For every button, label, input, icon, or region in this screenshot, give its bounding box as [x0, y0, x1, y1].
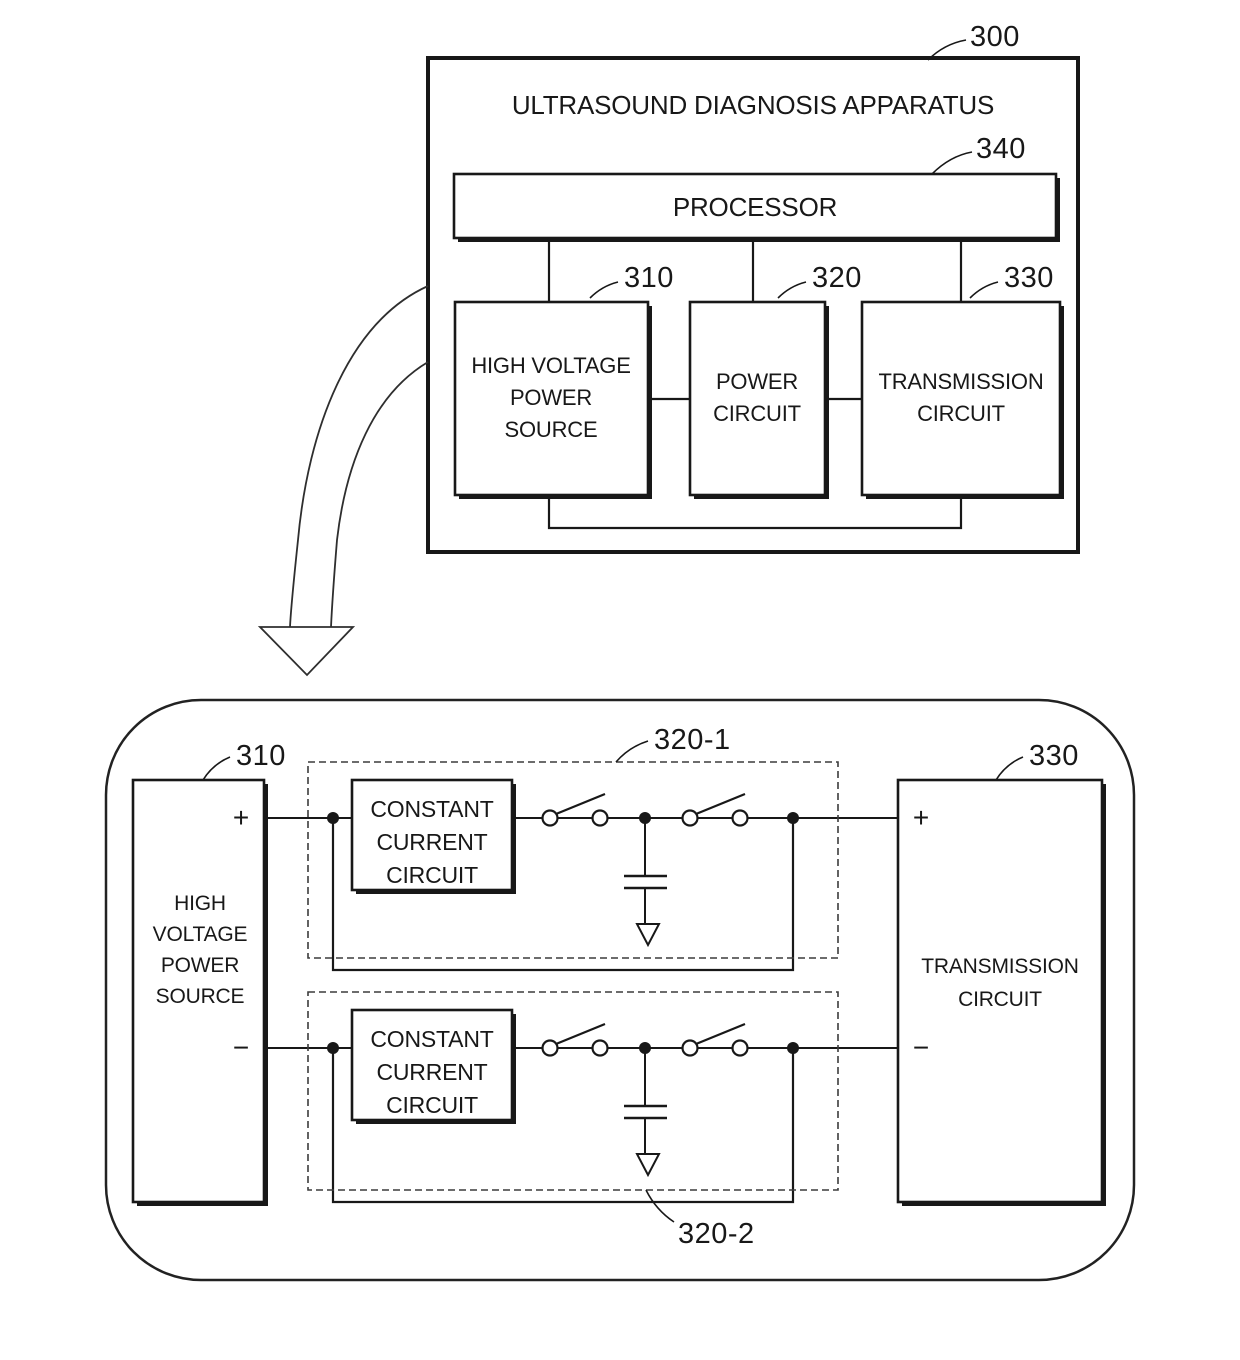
- transmission-label-line-1: TRANSMISSION: [878, 369, 1043, 394]
- bran2-junction-dot-3: [787, 1042, 799, 1054]
- branch2-switch1-contact-a: [543, 1041, 558, 1056]
- branch1-switch2-contact-b: [733, 811, 748, 826]
- detail-hvps-label-line-1: HIGH: [174, 892, 226, 915]
- branch2-switch2-contact-a: [683, 1041, 698, 1056]
- branch1-junction-dot-2: [639, 812, 651, 824]
- ref-320-1-label: 320-1: [654, 724, 731, 756]
- detail-hvps-label-line-2: VOLTAGE: [153, 923, 248, 946]
- hvps-label-line-2: POWER: [510, 385, 592, 410]
- detail-hvps-label-line-4: SOURCE: [156, 985, 245, 1008]
- detail-trans-label-line-2: CIRCUIT: [958, 988, 1042, 1011]
- transmission-label-line-2: CIRCUIT: [917, 401, 1005, 426]
- ccc2-label-line-2: CURRENT: [376, 1059, 487, 1085]
- branch1-switch2-contact-a: [683, 811, 698, 826]
- branch1-switch1-contact-b: [593, 811, 608, 826]
- overview-diagram: ULTRASOUND DIAGNOSIS APPARATUS 300 PROCE…: [428, 21, 1078, 552]
- ref-300-label: 300: [970, 21, 1020, 53]
- apparatus-title: ULTRASOUND DIAGNOSIS APPARATUS: [512, 90, 994, 120]
- power-circuit-box: [690, 302, 825, 495]
- ccc1-label-line-3: CIRCUIT: [386, 862, 478, 888]
- ccc2-label-line-1: CONSTANT: [370, 1026, 493, 1052]
- detail-trans-plus-sign: +: [913, 802, 929, 833]
- ref-340-label: 340: [976, 133, 1026, 165]
- processor-label: PROCESSOR: [673, 192, 837, 222]
- branch1-switch1-contact-a: [543, 811, 558, 826]
- detail-trans-minus-sign: −: [913, 1032, 929, 1063]
- ref-310-label: 310: [624, 262, 674, 294]
- transmission-box: [862, 302, 1060, 495]
- branch1-junction-dot-1: [327, 812, 339, 824]
- power-circuit-label-line-1: POWER: [716, 369, 798, 394]
- zoom-arrow-outer-curve: [290, 286, 428, 627]
- zoom-arrow-head: [260, 627, 353, 675]
- hvps-label-line-3: SOURCE: [505, 417, 598, 442]
- patent-figure-page: ULTRASOUND DIAGNOSIS APPARATUS 300 PROCE…: [0, 0, 1240, 1360]
- branch2-junction-dot-1: [327, 1042, 339, 1054]
- branch2-switch2-contact-b: [733, 1041, 748, 1056]
- branch2-junction-dot-2: [639, 1042, 651, 1054]
- detail-hvps-plus-sign: +: [233, 802, 249, 833]
- detail-hvps-label-line-3: POWER: [161, 954, 239, 977]
- branch2-switch1-contact-b: [593, 1041, 608, 1056]
- detail-trans-label-line-1: TRANSMISSION: [921, 955, 1078, 978]
- power-circuit-label-line-2: CIRCUIT: [713, 401, 801, 426]
- detail-diagram: CONSTANT CURRENT CIRCUIT CONSTANT CURREN…: [106, 700, 1134, 1280]
- zoom-arrow: [260, 286, 428, 675]
- ccc2-label-line-3: CIRCUIT: [386, 1092, 478, 1118]
- branch1-junction-dot-3: [787, 812, 799, 824]
- hvps-label-line-1: HIGH VOLTAGE: [471, 353, 630, 378]
- ccc1-label-line-2: CURRENT: [376, 829, 487, 855]
- patent-figure-canvas: ULTRASOUND DIAGNOSIS APPARATUS 300 PROCE…: [0, 0, 1240, 1360]
- ref-320-2-label: 320-2: [678, 1218, 755, 1250]
- detail-ref-310-label: 310: [236, 740, 286, 772]
- ref-320-label: 320: [812, 262, 862, 294]
- zoom-arrow-inner-curve: [331, 362, 428, 627]
- ccc1-label-line-1: CONSTANT: [370, 796, 493, 822]
- ref-330-label: 330: [1004, 262, 1054, 294]
- detail-ref-330-label: 330: [1029, 740, 1079, 772]
- detail-hvps-minus-sign: −: [233, 1032, 249, 1063]
